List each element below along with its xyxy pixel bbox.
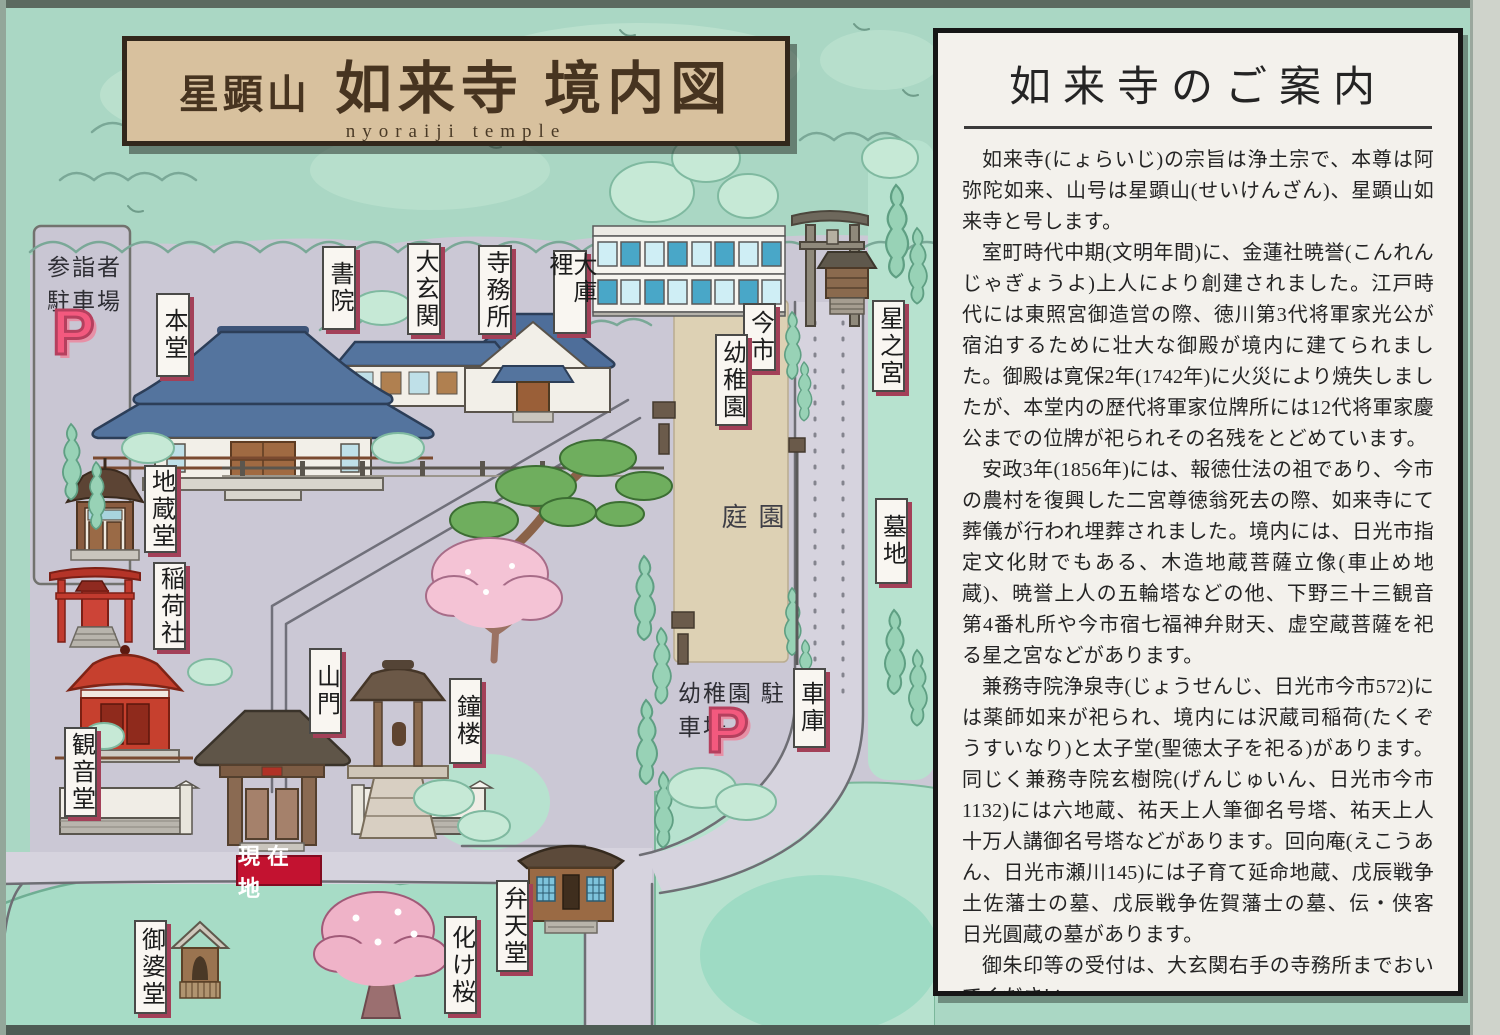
frame-left: [0, 0, 6, 1035]
label-ogenkan: 大玄関: [407, 243, 441, 335]
label-genzaichi: 現在地: [236, 855, 322, 886]
label-inarisha: 稲荷社: [153, 562, 186, 650]
label-sanmon: 山門: [309, 648, 342, 734]
label-shoro: 鐘楼: [449, 678, 482, 764]
label-jizodo: 地蔵堂: [144, 465, 177, 553]
label-obado: 御婆堂: [134, 920, 167, 1014]
label-shoin: 書院: [322, 246, 356, 330]
label-bochi: 墓地: [875, 498, 908, 584]
label-entei: 園庭: [735, 503, 767, 577]
frame-right: [1470, 0, 1500, 1035]
info-paragraph: 安政3年(1856年)には、報徳仕法の祖であり、今市の農村を復興した二宮尊徳翁死…: [962, 455, 1434, 672]
map-title: 如来寺 境内図: [335, 43, 733, 125]
info-paragraph: 如来寺(にょらいじ)の宗旨は浄土宗で、本尊は阿弥陀如来、山号は星顕山(せいけんざ…: [962, 145, 1434, 238]
label-kannondo: 観音堂: [64, 727, 97, 817]
label-visitor-parking-line1: 参詣者: [47, 248, 127, 276]
info-panel-title: 如来寺のご案内: [964, 53, 1432, 129]
label-imaichi-yochien-lower: 幼稚園: [715, 334, 748, 426]
info-paragraph: 御朱印等の受付は、大玄関右手の寺務所までおいでください。: [962, 951, 1434, 996]
mountain-name: 星顕山: [179, 62, 311, 120]
frame-bottom: [0, 1025, 1500, 1035]
title-banner: 星顕山 如来寺 境内図 nyoraiji temple: [122, 36, 790, 146]
banner-title-row: 星顕山 如来寺 境内図: [127, 43, 785, 125]
label-hondo: 本堂: [156, 293, 190, 377]
frame-top: [0, 0, 1500, 8]
info-panel: 如来寺のご案内 如来寺(にょらいじ)の宗旨は浄土宗で、本尊は阿弥陀如来、山号は星…: [933, 28, 1463, 996]
temple-map-board: 本堂書院大玄関寺務所大庫裡今市幼稚園星之宮墓地地蔵堂稲荷社観音堂山門鐘楼車庫弁天…: [0, 0, 1500, 1035]
label-bentendo: 弁天堂: [496, 880, 529, 972]
label-okurii: 大庫裡: [553, 250, 587, 334]
map-labels-layer: 本堂書院大玄関寺務所大庫裡今市幼稚園星之宮墓地地蔵堂稲荷社観音堂山門鐘楼車庫弁天…: [0, 0, 935, 1035]
label-bakezakura: 化け桜: [444, 916, 477, 1014]
visitor-parking-p: P: [52, 300, 114, 378]
info-paragraph: 室町時代中期(文明年間)に、金蓮社暁誉(こんれんじゃぎょうよ)上人により創建され…: [962, 238, 1434, 455]
label-jimusho: 寺務所: [478, 245, 512, 335]
yochien-parking-p: P: [706, 698, 768, 776]
info-paragraphs: 如来寺(にょらいじ)の宗旨は浄土宗で、本尊は阿弥陀如来、山号は星顕山(せいけんざ…: [962, 145, 1434, 996]
label-hoshinomiya: 星之宮: [872, 300, 905, 392]
info-paragraph: 兼務寺院浄泉寺(じょうせんじ、日光市今市572)には薬師如来が祀られ、境内には沢…: [962, 672, 1434, 951]
